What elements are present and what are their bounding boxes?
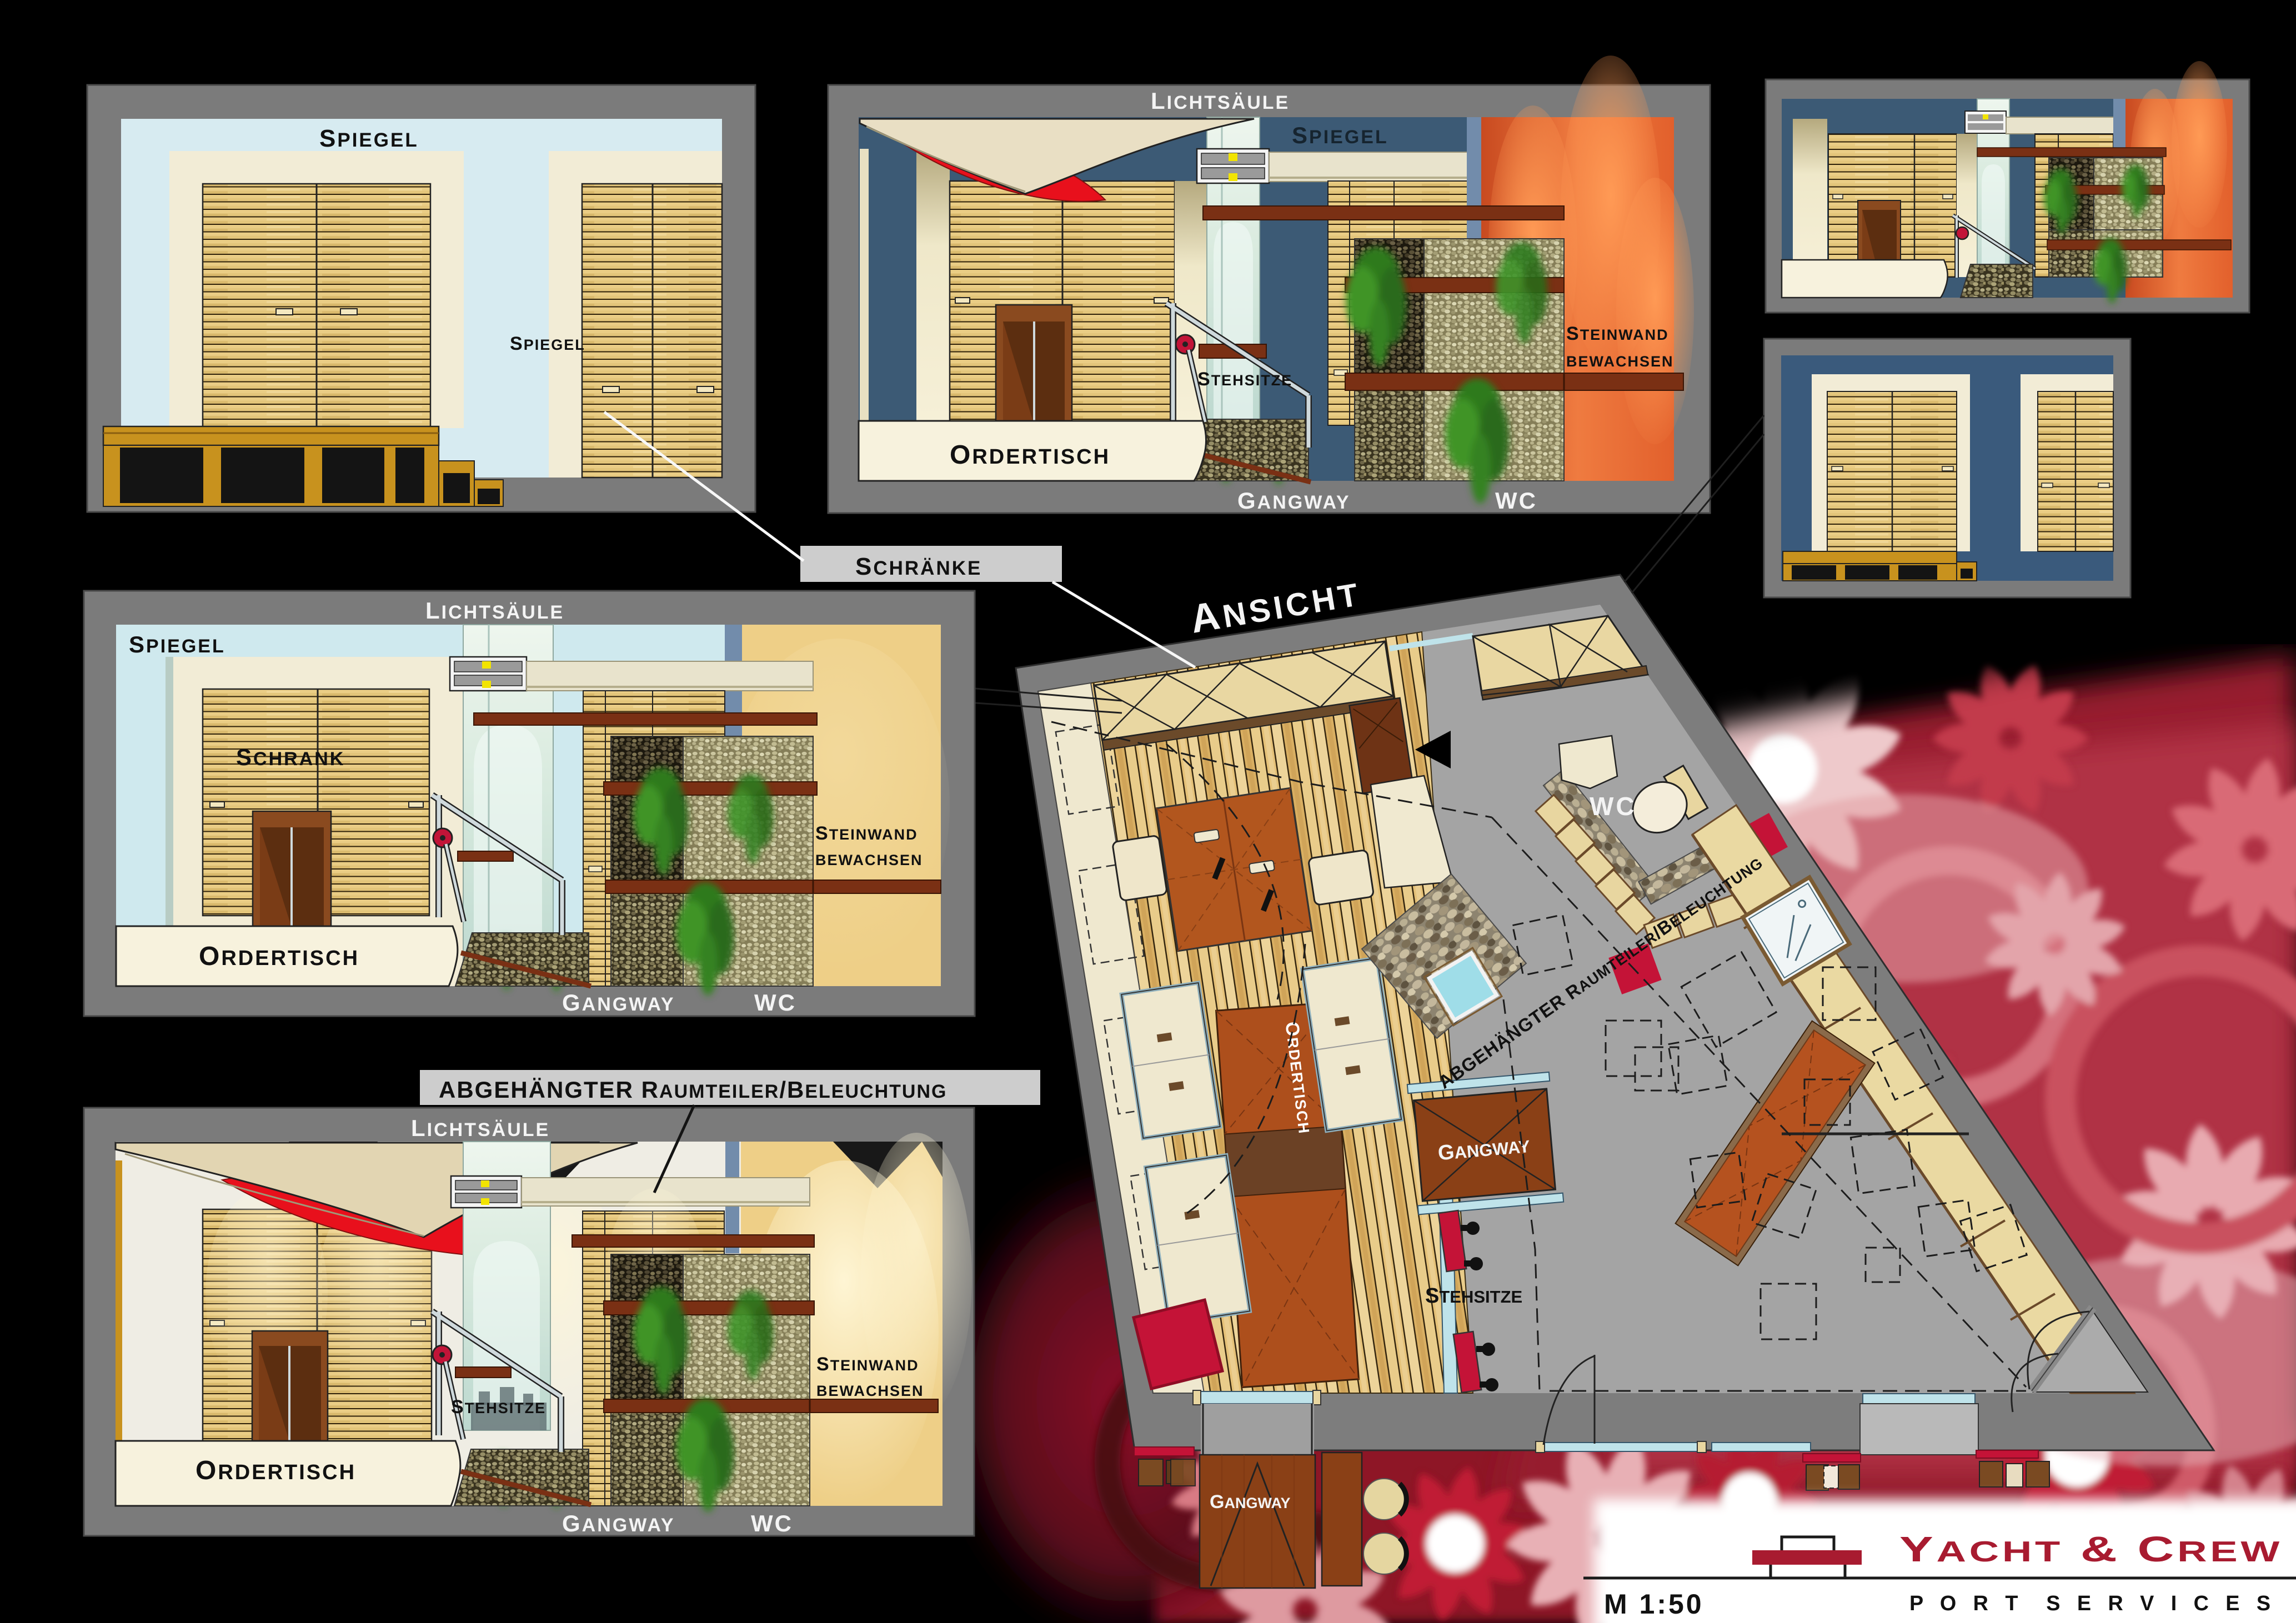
svg-text:BEWACHSEN: BEWACHSEN <box>815 852 923 868</box>
svg-text:SPIEGEL: SPIEGEL <box>510 333 585 354</box>
svg-text:SPIEGEL: SPIEGEL <box>1292 122 1388 148</box>
svg-text:ABGEHÄNGTER RAUMTEILER/BELEUCH: ABGEHÄNGTER RAUMTEILER/BELEUCHTUNG <box>439 1077 947 1103</box>
svg-text:STEINWAND: STEINWAND <box>1566 323 1669 344</box>
svg-text:GANGWAY: GANGWAY <box>1210 1491 1290 1513</box>
svg-text:SCHRANK: SCHRANK <box>236 744 345 770</box>
svg-text:STEINWAND: STEINWAND <box>815 823 918 844</box>
svg-text:BEWACHSEN: BEWACHSEN <box>816 1383 924 1399</box>
svg-text:LICHTSÄULE: LICHTSÄULE <box>425 597 564 624</box>
svg-text:SPIEGEL: SPIEGEL <box>319 125 419 152</box>
svg-text:STEINWAND: STEINWAND <box>816 1354 919 1375</box>
svg-text:STEHSITZE: STEHSITZE <box>451 1396 546 1418</box>
svg-text:SCHRÄNKE: SCHRÄNKE <box>855 553 982 580</box>
svg-text:P O R T S E R V I C E S: P O R T S E R V I C E S <box>1909 1592 2276 1615</box>
svg-text:GANGWAY: GANGWAY <box>1237 488 1351 514</box>
svg-text:LICHTSÄULE: LICHTSÄULE <box>411 1115 550 1141</box>
svg-text:GANGWAY: GANGWAY <box>562 989 675 1016</box>
svg-text:WC: WC <box>754 989 796 1016</box>
svg-text:BEWACHSEN: BEWACHSEN <box>1566 353 1674 370</box>
svg-text:GANGWAY: GANGWAY <box>562 1510 675 1536</box>
svg-text:WC: WC <box>1590 792 1637 821</box>
svg-text:WC: WC <box>751 1510 793 1536</box>
svg-text:SPIEGEL: SPIEGEL <box>129 631 225 657</box>
svg-text:STEHSITZE: STEHSITZE <box>1197 369 1292 390</box>
svg-text:WC: WC <box>1495 488 1537 514</box>
svg-text:STEHSITZE: STEHSITZE <box>1425 1284 1522 1308</box>
svg-text:M 1:50: M 1:50 <box>1604 1589 1704 1620</box>
svg-text:LICHTSÄULE: LICHTSÄULE <box>1151 88 1290 114</box>
